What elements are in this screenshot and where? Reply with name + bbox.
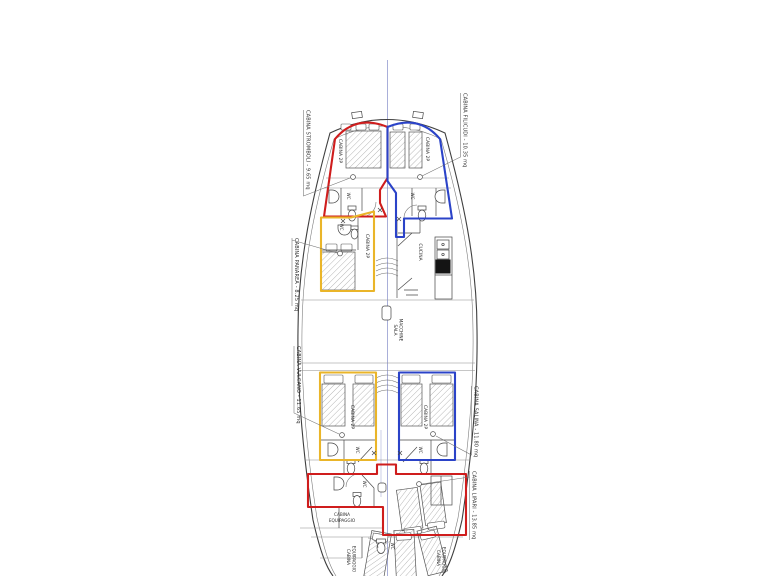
room-label-cabina-equipaggio-stern: EQUIPAGGIO xyxy=(352,546,357,573)
faucet-icon xyxy=(442,253,444,255)
label-cabina-vulcano: CABINA VULCANO - 11.65 mq xyxy=(295,346,301,424)
pillow xyxy=(369,124,379,130)
pillow xyxy=(356,124,366,130)
bow-cleat-right xyxy=(413,111,424,118)
leader-circle xyxy=(351,175,356,180)
bow-cleat-left xyxy=(352,111,363,118)
label-cabina-panarea: CABINA PANAREA - 8.25 mq xyxy=(293,238,299,311)
room-label-cucina: CUCINA xyxy=(417,243,423,261)
room-label-wc: WC xyxy=(339,224,344,231)
pillow xyxy=(432,375,451,383)
room-label-wc: WC xyxy=(346,193,351,200)
pillow xyxy=(355,375,373,383)
bed-single xyxy=(322,384,345,426)
bed-double xyxy=(321,252,355,290)
room-label-cabina-2p: CABINA 2P xyxy=(337,139,343,163)
room-label-cabina-2p: CABINA 2P xyxy=(422,405,428,429)
deck-plan-page: CABINA STROMBOLI - 9.65 mq CABINA FILICU… xyxy=(0,0,768,576)
bed-single xyxy=(430,384,453,426)
room-label-wc: WC xyxy=(390,543,395,550)
leader-circle xyxy=(417,482,422,487)
label-cabina-filicudi: CABINA FILICUDI - 10.35 mq xyxy=(462,93,468,167)
faucet-icon xyxy=(442,243,444,245)
room-label-wc: WC xyxy=(410,193,415,200)
sink-fixture xyxy=(435,190,445,203)
sink-fixture xyxy=(328,443,338,456)
room-label-cabina-equipaggio-stern: CABINA xyxy=(436,550,441,566)
beds-lipari xyxy=(396,482,447,536)
bed-single xyxy=(401,384,422,426)
leader-circle xyxy=(431,432,436,437)
bed-single xyxy=(390,132,405,168)
toilet-fixture xyxy=(353,493,361,507)
leader-filicudi xyxy=(422,93,461,176)
label-cabina-stromboli: CABINA STROMBOLI - 9.65 mq xyxy=(305,110,311,190)
engine-room-hatch xyxy=(382,306,391,320)
boat-deck-plan: CABINA STROMBOLI - 9.65 mq CABINA FILICU… xyxy=(0,0,768,576)
bed-double xyxy=(346,131,381,168)
room-label-cabina-equipaggio-stern: CABINA xyxy=(346,549,351,565)
bed-single xyxy=(353,384,374,426)
room-label-cabina-2p: CABINA 2P xyxy=(364,234,370,258)
room-label-cabina-2p: CABINA 2P xyxy=(424,137,430,161)
sink-fixture xyxy=(437,443,447,456)
room-label-cabina-equipaggio: EQUIPAGGIO xyxy=(329,518,356,523)
galley xyxy=(435,237,452,299)
room-label-wc: WC xyxy=(418,447,423,454)
toilet-fixture xyxy=(420,460,428,475)
room-label-cabina-equipaggio-stern: EQUIPAGGIO xyxy=(442,547,447,574)
leader-circle xyxy=(340,433,345,438)
toilet-fixture xyxy=(348,206,356,221)
label-cabina-salina: CABINA SALINA - 11.80 mq xyxy=(473,386,479,457)
pillow xyxy=(402,375,420,383)
bed-stern-center xyxy=(394,530,416,576)
leader-circle xyxy=(338,251,343,256)
room-label-cabina-2p: CABINA 2P xyxy=(349,405,355,429)
toilet-fixture xyxy=(351,226,358,239)
sink-fixture xyxy=(329,190,339,203)
room-label-sala-macchine: SALA xyxy=(393,325,398,336)
toilet-fixture xyxy=(347,460,355,475)
sink-fixture xyxy=(334,477,344,490)
room-label-wc: WC xyxy=(355,447,360,454)
leader-circle xyxy=(418,175,423,180)
room-label-sala-macchine: MACCHINE xyxy=(399,319,404,342)
aft-step-hatch xyxy=(378,483,386,492)
label-cabina-lipari: CABINA LIPARI - 13.85 mq xyxy=(471,471,477,539)
room-label-cabina-equipaggio: CABINA xyxy=(334,512,350,517)
room-label-wc: WC xyxy=(362,481,367,488)
pillow xyxy=(324,375,343,383)
galley-stove xyxy=(436,260,450,273)
bed-single xyxy=(409,132,422,168)
